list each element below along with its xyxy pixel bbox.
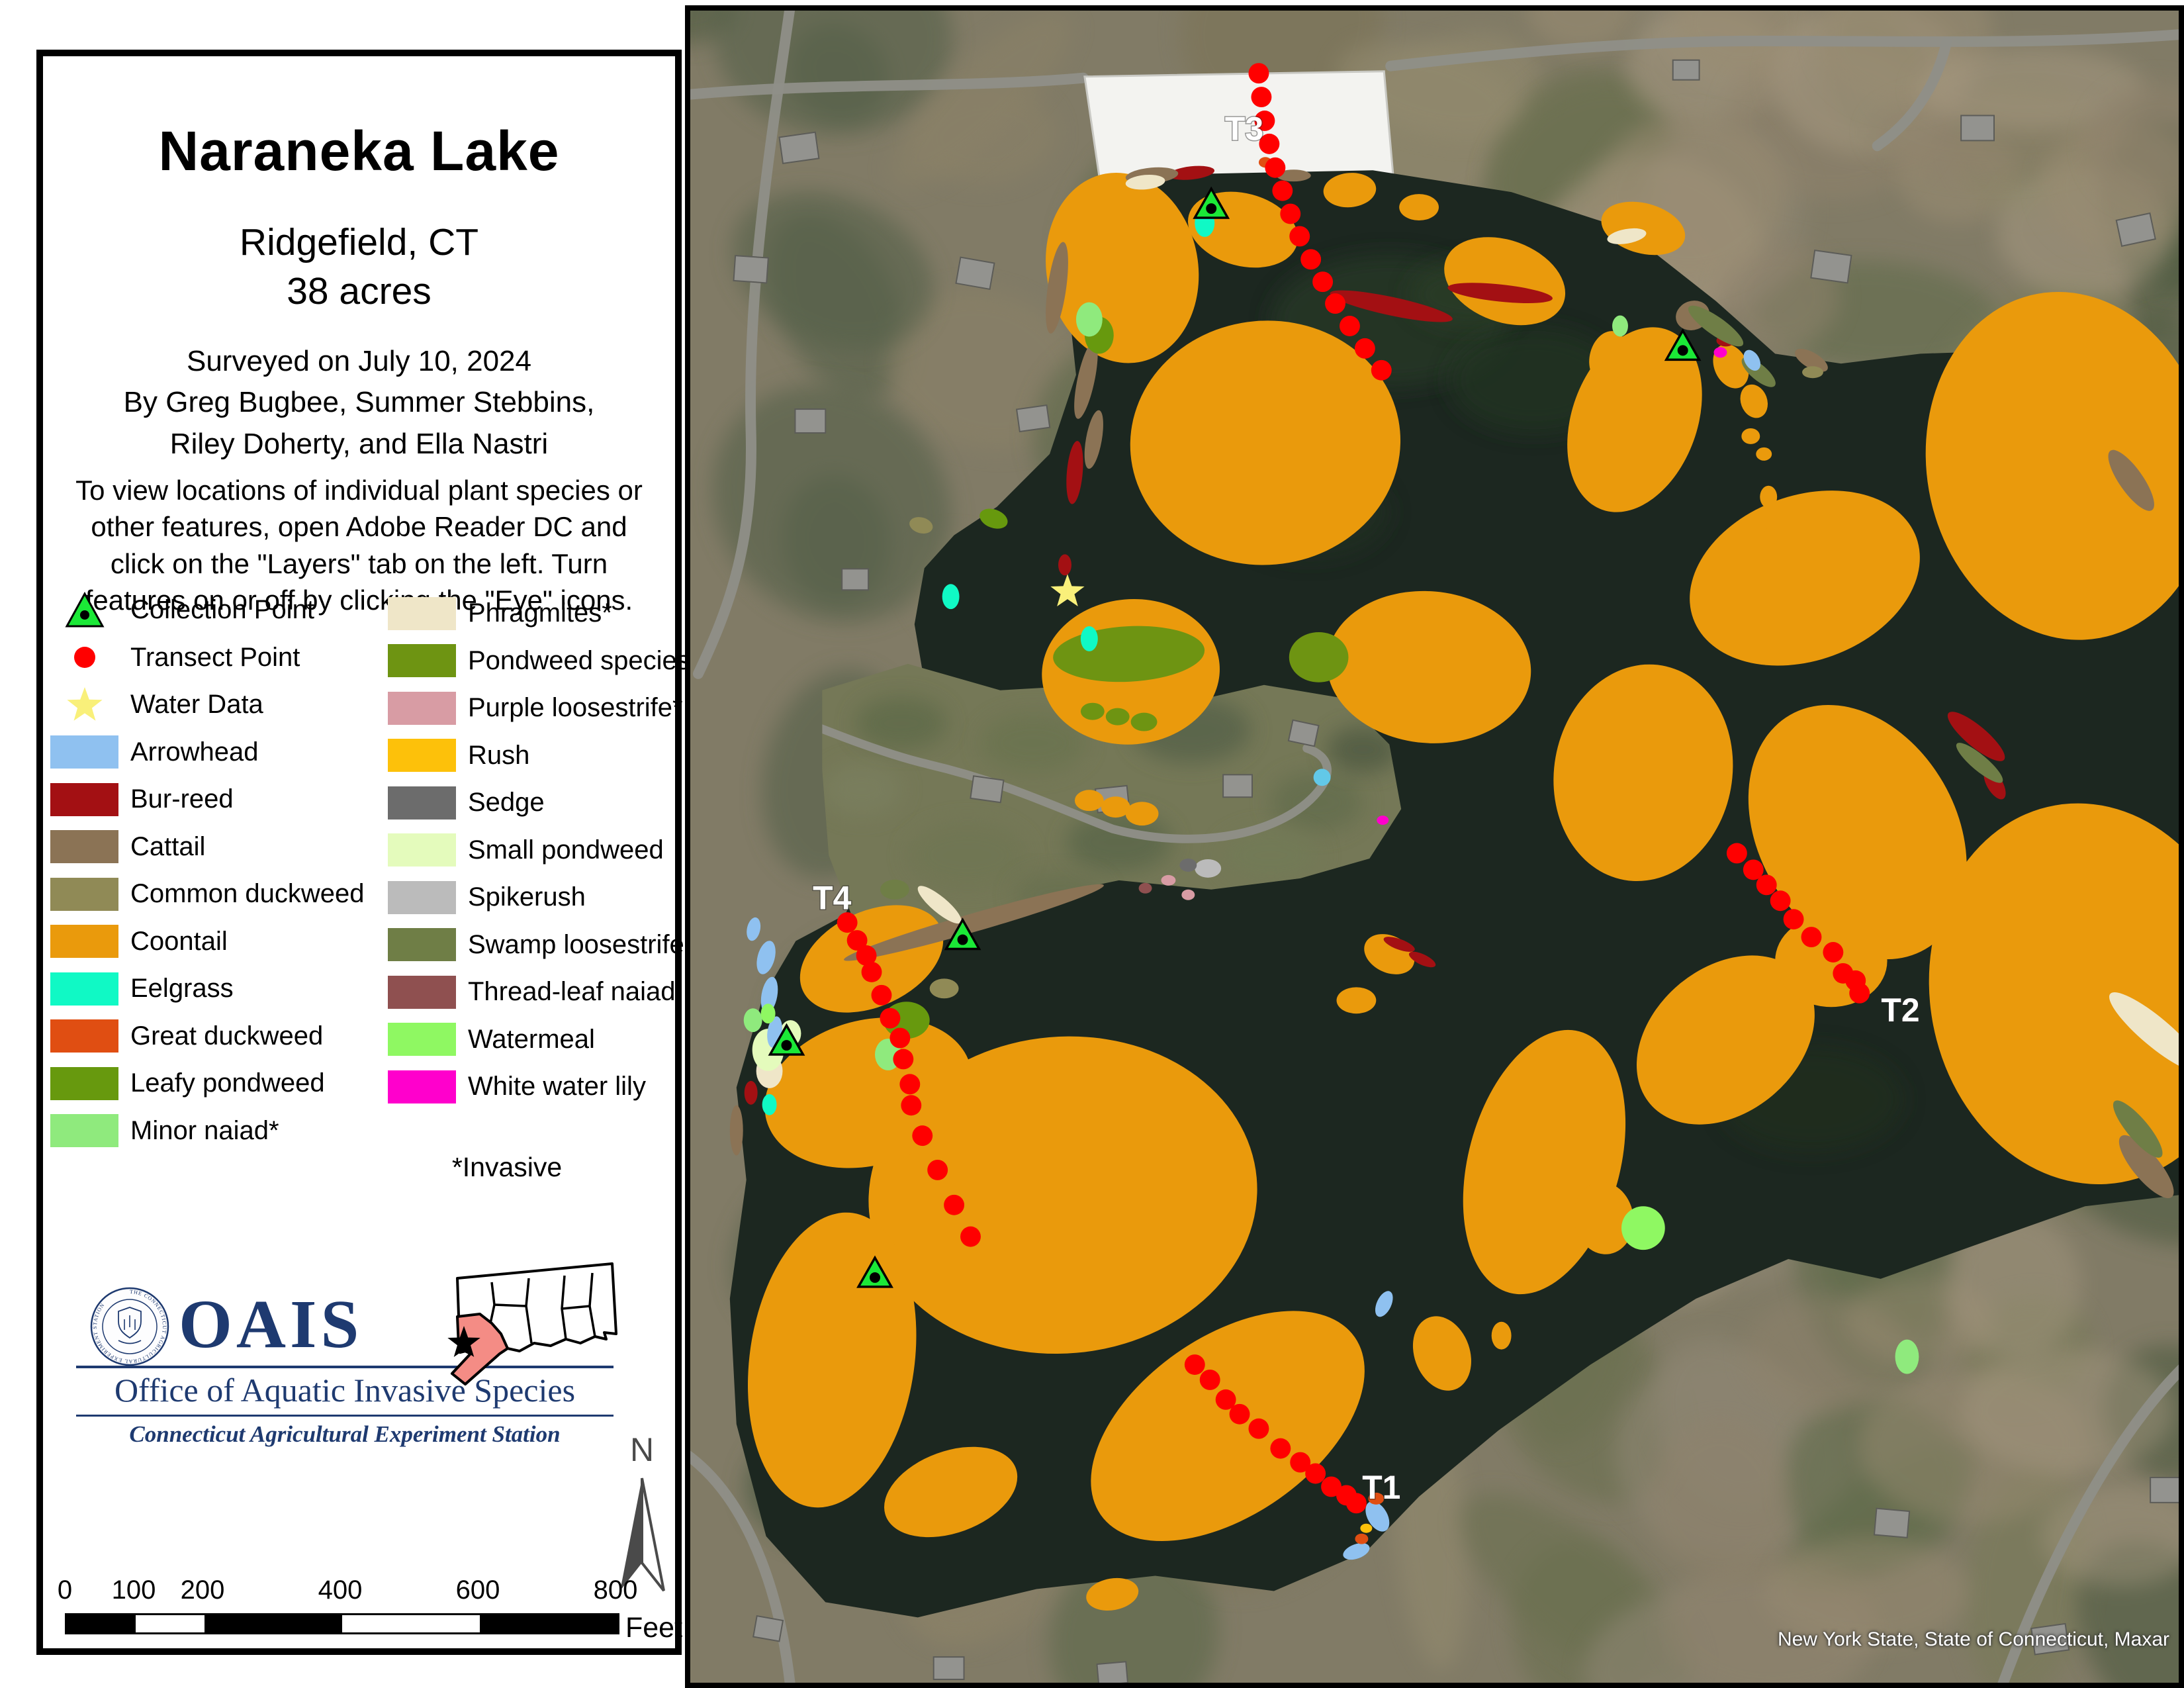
legend-row: Minor naiad* bbox=[50, 1107, 355, 1155]
transect-point-icon bbox=[899, 1074, 920, 1094]
legend-swatch bbox=[388, 786, 456, 820]
species-patch bbox=[1802, 366, 1823, 378]
legend-symbol bbox=[50, 735, 118, 769]
transect-point-icon bbox=[1801, 927, 1822, 947]
transect-point-icon bbox=[1371, 360, 1392, 381]
coontail-bed bbox=[1741, 428, 1760, 444]
transect-point-icon bbox=[1340, 316, 1360, 336]
transect-point-icon bbox=[927, 1160, 948, 1180]
legend-symbol bbox=[388, 692, 456, 725]
house bbox=[734, 256, 768, 283]
legend-swatch bbox=[388, 739, 456, 772]
legend-label: Thread-leaf naiad bbox=[468, 977, 676, 1007]
legend-row: Great duckweed bbox=[50, 1013, 355, 1060]
transect-point-icon bbox=[901, 1095, 921, 1115]
legend-row: Collection Point bbox=[50, 586, 355, 634]
scale-tick-label: 800 bbox=[594, 1575, 638, 1605]
transect-point-icon bbox=[1185, 1354, 1205, 1375]
legend-swatch bbox=[388, 644, 456, 677]
legend-swatch bbox=[388, 692, 456, 725]
legend-swatch bbox=[50, 925, 118, 958]
transect-point-icon bbox=[1756, 874, 1777, 895]
house bbox=[1673, 60, 1700, 80]
transect-point-icon bbox=[1280, 204, 1300, 224]
transect-point-icon bbox=[1355, 338, 1375, 359]
species-patch bbox=[1081, 626, 1098, 651]
legend-label: Spikerush bbox=[468, 882, 586, 912]
house bbox=[2150, 1477, 2179, 1503]
legend-symbol bbox=[388, 1023, 456, 1056]
legend-column-left: Collection PointTransect PointWater Data… bbox=[50, 586, 355, 1154]
legend-symbol bbox=[388, 597, 456, 630]
species-patch bbox=[1713, 347, 1727, 357]
legend-symbol bbox=[388, 833, 456, 867]
legend-symbol bbox=[50, 972, 118, 1006]
house bbox=[753, 1616, 783, 1641]
legend-row: Water Data bbox=[50, 681, 355, 729]
legend-swatch bbox=[50, 735, 118, 769]
legend-swatch bbox=[50, 878, 118, 911]
scale-tick-label: 200 bbox=[181, 1575, 225, 1605]
transect-point-icon bbox=[1251, 87, 1271, 107]
page-title: Naraneka Lake bbox=[43, 119, 675, 183]
legend-symbol bbox=[388, 786, 456, 820]
species-patch bbox=[1106, 708, 1130, 726]
scale-tick-label: 400 bbox=[318, 1575, 363, 1605]
legend-label: Leafy pondweed bbox=[130, 1068, 325, 1098]
transect-point-icon bbox=[1312, 271, 1333, 292]
transect-point-icon bbox=[889, 1028, 910, 1049]
species-patch bbox=[1058, 554, 1071, 575]
legend-symbol bbox=[388, 976, 456, 1009]
coontail-bed bbox=[1126, 802, 1159, 825]
scale-bar-segment bbox=[480, 1615, 617, 1632]
lake-map: T3T4T2T1 New York State, State of Connec… bbox=[685, 5, 2184, 1688]
legend-row: Pondweed species bbox=[388, 637, 692, 685]
survey-date: Surveyed on July 10, 2024 bbox=[43, 341, 675, 382]
legend-row: Leafy pondweed bbox=[50, 1060, 355, 1107]
species-patch bbox=[730, 1105, 743, 1156]
species-patch bbox=[1139, 883, 1152, 894]
species-patch bbox=[761, 1004, 776, 1023]
legend-label: Purple loosestrife* bbox=[468, 693, 683, 723]
legend-label: Minor naiad* bbox=[130, 1116, 279, 1146]
legend-swatch bbox=[388, 1070, 456, 1103]
oais-station-name: Connecticut Agricultural Experiment Stat… bbox=[76, 1421, 614, 1448]
legend-label: Arrowhead bbox=[130, 737, 258, 767]
legend-swatch bbox=[388, 928, 456, 961]
species-patch bbox=[1195, 859, 1221, 878]
legend-label: Watermeal bbox=[468, 1025, 595, 1055]
legend-symbol bbox=[388, 881, 456, 914]
species-patch bbox=[1377, 816, 1388, 825]
legend-label: Swamp loosestrife bbox=[468, 930, 684, 960]
legend-row: Spikerush bbox=[388, 874, 692, 921]
transect-point-icon bbox=[1300, 249, 1321, 269]
transect-point-icon bbox=[862, 962, 882, 982]
transect-point-icon bbox=[880, 1008, 900, 1029]
legend-row: Small pondweed bbox=[388, 827, 692, 874]
legend-row: Arrowhead bbox=[50, 729, 355, 776]
legend-swatch bbox=[50, 972, 118, 1006]
oais-acronym: OAIS bbox=[179, 1285, 363, 1364]
invasive-note: *Invasive bbox=[388, 1152, 626, 1183]
transect-point-icon bbox=[1265, 158, 1285, 178]
species-patch bbox=[1081, 703, 1105, 720]
legend-row: Rush bbox=[388, 732, 692, 780]
coontail-bed bbox=[1756, 447, 1772, 461]
legend-swatch bbox=[388, 881, 456, 914]
survey-authors-1: By Greg Bugbee, Summer Stebbins, bbox=[43, 382, 675, 423]
transect-point-icon bbox=[872, 985, 892, 1006]
legend-symbol bbox=[50, 590, 118, 630]
legend-column-right: Phragmites*Pondweed speciesPurple looses… bbox=[388, 590, 692, 1111]
legend-row: Sedge bbox=[388, 779, 692, 827]
legend-swatch bbox=[388, 1023, 456, 1056]
coontail-bed bbox=[1492, 1322, 1512, 1350]
scale-tick-label: 100 bbox=[112, 1575, 156, 1605]
legend-label: Sedge bbox=[468, 788, 545, 818]
house bbox=[1097, 1662, 1128, 1683]
north-label: N bbox=[630, 1432, 654, 1468]
survey-authors-2: Riley Doherty, and Ella Nastri bbox=[43, 424, 675, 465]
scale-bar-track bbox=[65, 1613, 619, 1634]
legend-row: Transect Point bbox=[50, 634, 355, 682]
species-patch bbox=[1612, 316, 1628, 337]
map-attribution: New York State, State of Connecticut, Ma… bbox=[1778, 1628, 2169, 1651]
legend-symbol bbox=[50, 685, 118, 725]
legend-label: Rush bbox=[468, 741, 529, 771]
species-patch bbox=[1360, 1524, 1372, 1533]
legend-row: Phragmites* bbox=[388, 590, 692, 637]
legend-swatch bbox=[50, 830, 118, 863]
species-patch bbox=[942, 584, 960, 609]
lake-map-svg: T3T4T2T1 bbox=[690, 11, 2179, 1683]
legend-symbol bbox=[50, 637, 118, 677]
legend-swatch bbox=[50, 1067, 118, 1100]
transect-label: T2 bbox=[1881, 992, 1919, 1029]
legend-swatch bbox=[50, 1114, 118, 1147]
scale-tick-label: 0 bbox=[58, 1575, 72, 1605]
legend-swatch bbox=[388, 976, 456, 1009]
transect-point-icon bbox=[1289, 226, 1310, 246]
transect-point-icon bbox=[1272, 181, 1293, 201]
scale-bar-segment bbox=[205, 1615, 342, 1632]
legend-symbol bbox=[388, 644, 456, 677]
transect-point-icon bbox=[1849, 983, 1870, 1004]
legend-label: White water lily bbox=[468, 1072, 646, 1102]
legend-symbol bbox=[50, 925, 118, 958]
legend-row: Thread-leaf naiad bbox=[388, 968, 692, 1016]
coontail-bed bbox=[1760, 486, 1777, 508]
house bbox=[1961, 115, 1994, 140]
species-patch bbox=[880, 880, 909, 900]
legend-label: Phragmites* bbox=[468, 598, 612, 628]
legend-symbol bbox=[50, 878, 118, 911]
species-patch bbox=[1179, 859, 1197, 872]
species-patch bbox=[744, 1008, 762, 1032]
house bbox=[1811, 250, 1851, 283]
species-patch bbox=[1161, 875, 1175, 886]
transect-point-icon bbox=[912, 1125, 933, 1146]
scale-bar-segment bbox=[136, 1615, 205, 1632]
house bbox=[1874, 1509, 1909, 1538]
water-star-icon bbox=[64, 685, 106, 725]
acreage-subtitle: 38 acres bbox=[43, 269, 675, 313]
legend-symbol bbox=[388, 739, 456, 772]
legend-swatch bbox=[388, 597, 456, 630]
house bbox=[934, 1657, 964, 1679]
species-patch bbox=[745, 1081, 758, 1105]
species-patch bbox=[1895, 1340, 1919, 1374]
legend-symbol bbox=[388, 1070, 456, 1103]
scale-bar-segment bbox=[67, 1615, 136, 1632]
legend-row: Cattail bbox=[50, 823, 355, 871]
legend-swatch bbox=[50, 783, 118, 816]
transect-point-icon bbox=[1784, 909, 1804, 929]
oais-seal-icon: THE CONNECTICUT AGRICULTURAL EXPERIMENT … bbox=[88, 1285, 171, 1368]
species-patch bbox=[930, 978, 959, 998]
coontail-bed bbox=[1075, 790, 1104, 811]
legend-row: Common duckweed bbox=[50, 870, 355, 918]
transect-point-icon bbox=[1823, 942, 1843, 962]
species-patch bbox=[1076, 303, 1103, 337]
scale-tick-label: 600 bbox=[456, 1575, 500, 1605]
legend-label: Transect Point bbox=[130, 643, 300, 673]
legend-label: Coontail bbox=[130, 927, 228, 957]
legend-label: Cattail bbox=[130, 832, 205, 862]
house bbox=[842, 569, 868, 590]
transect-point-icon bbox=[1305, 1464, 1326, 1484]
species-patch bbox=[1181, 890, 1195, 900]
legend-symbol bbox=[50, 1067, 118, 1100]
survey-map-sheet: Naraneka Lake Ridgefield, CT 38 acres Su… bbox=[0, 0, 2184, 1688]
legend-symbol bbox=[50, 783, 118, 816]
legend-label: Great duckweed bbox=[130, 1021, 323, 1051]
transect-point-icon bbox=[1770, 890, 1791, 911]
transect-point-icon bbox=[1200, 1370, 1220, 1390]
legend-row: Coontail bbox=[50, 918, 355, 966]
coontail-bed bbox=[1337, 987, 1377, 1013]
transect-point-icon bbox=[960, 1227, 981, 1247]
legend-row: Purple loosestrife* bbox=[388, 684, 692, 732]
transect-label: T3 bbox=[1225, 110, 1263, 147]
transect-point-icon bbox=[1248, 1419, 1269, 1439]
house bbox=[795, 409, 825, 433]
coontail-bed bbox=[1399, 194, 1439, 220]
legend-label: Common duckweed bbox=[130, 879, 365, 909]
ct-inset-map bbox=[439, 1253, 654, 1422]
scale-bar-segment bbox=[342, 1615, 480, 1632]
transect-label: T4 bbox=[813, 880, 851, 917]
transect-point-icon bbox=[893, 1049, 913, 1070]
legend-row: Watermeal bbox=[388, 1016, 692, 1064]
legend-swatch bbox=[388, 833, 456, 867]
legend-label: Collection Point bbox=[130, 595, 314, 625]
species-patch bbox=[1289, 632, 1349, 682]
coontail-bed bbox=[1763, 528, 1778, 546]
transect-point-icon bbox=[1727, 843, 1747, 864]
house bbox=[780, 132, 819, 164]
survey-credits: Surveyed on July 10, 2024 By Greg Bugbee… bbox=[43, 341, 675, 465]
house bbox=[1017, 405, 1050, 432]
transect-point-icon bbox=[1325, 293, 1345, 314]
legend-symbol bbox=[50, 1019, 118, 1053]
legend-row: Eelgrass bbox=[50, 965, 355, 1013]
transect-point-icon bbox=[1230, 1404, 1250, 1425]
collection-triangle-icon bbox=[64, 590, 106, 630]
transect-point-icon bbox=[944, 1195, 964, 1215]
species-patch bbox=[1131, 713, 1158, 731]
legend-symbol bbox=[50, 1114, 118, 1147]
species-patch bbox=[1355, 1534, 1368, 1544]
legend-label: Pondweed species bbox=[468, 646, 690, 676]
legend-row: White water lily bbox=[388, 1063, 692, 1111]
legend-label: Eelgrass bbox=[130, 974, 234, 1004]
info-panel: Naraneka Lake Ridgefield, CT 38 acres Su… bbox=[36, 50, 682, 1655]
house bbox=[956, 258, 994, 289]
legend-symbol bbox=[50, 830, 118, 863]
species-patch bbox=[1621, 1206, 1665, 1250]
legend-row: Swamp loosestrife bbox=[388, 921, 692, 969]
location-subtitle: Ridgefield, CT bbox=[43, 220, 675, 264]
transect-point-icon bbox=[1270, 1438, 1291, 1459]
transect-label: T1 bbox=[1362, 1469, 1400, 1506]
legend-label: Water Data bbox=[130, 690, 263, 720]
species-patch bbox=[762, 1094, 777, 1115]
legend-row: Bur-reed bbox=[50, 776, 355, 823]
legend-swatch bbox=[50, 1019, 118, 1053]
legend-symbol bbox=[388, 928, 456, 961]
legend-label: Small pondweed bbox=[468, 835, 664, 865]
transect-dot-icon bbox=[64, 637, 106, 677]
legend-label: Bur-reed bbox=[130, 784, 234, 814]
transect-point-icon bbox=[1248, 63, 1269, 83]
scale-bar-unit: Feet bbox=[625, 1612, 682, 1644]
